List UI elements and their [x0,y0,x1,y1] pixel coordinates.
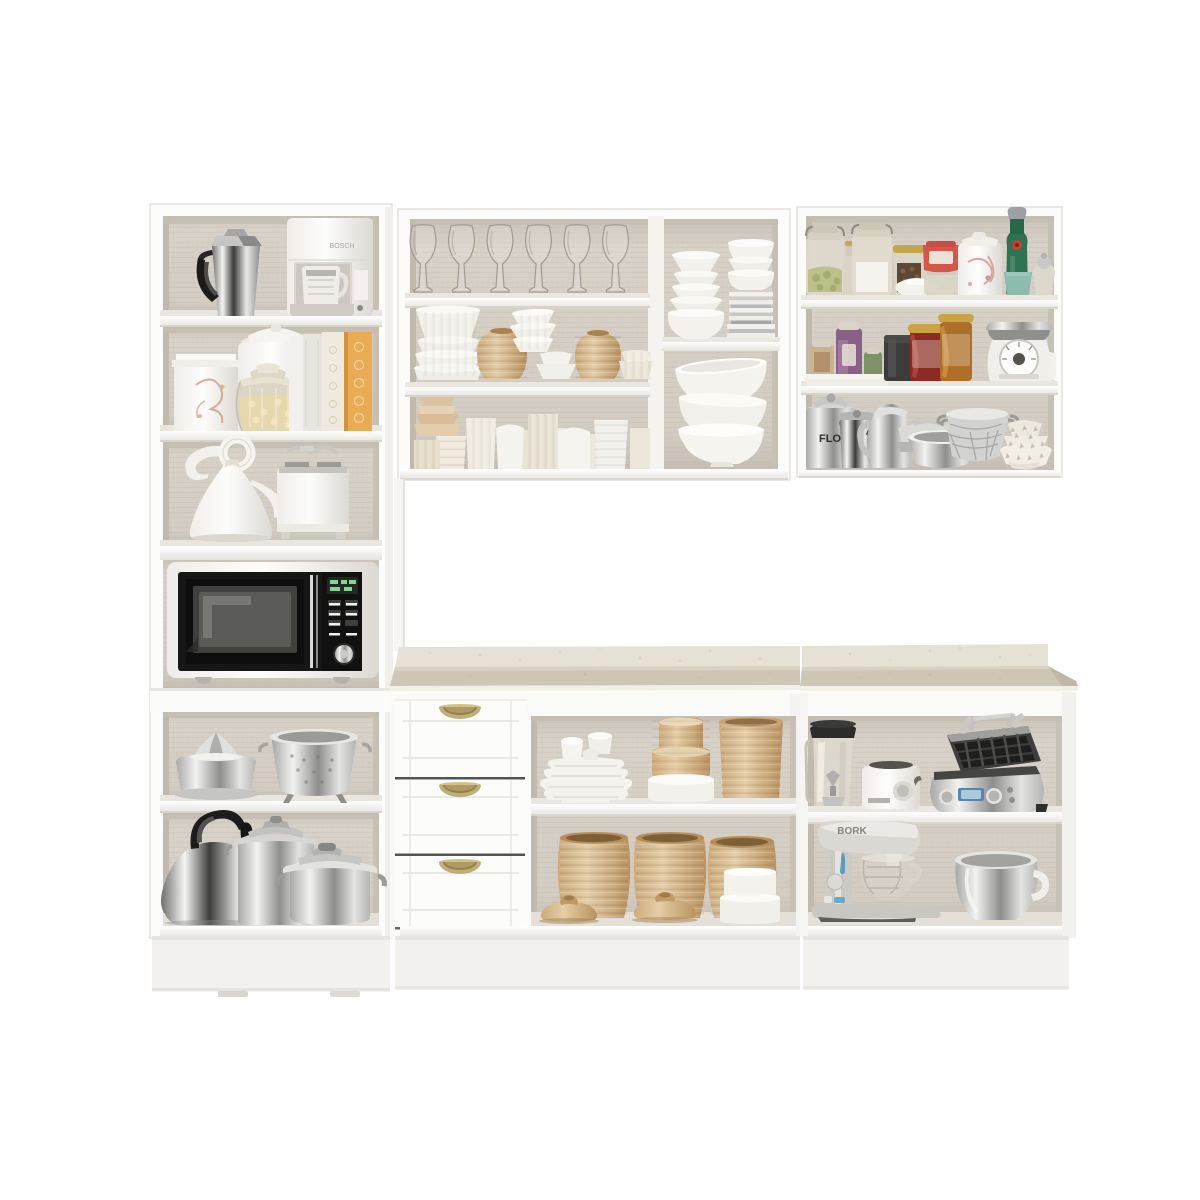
svg-text:FLO: FLO [819,433,841,445]
svg-text:BORK: BORK [837,826,867,837]
svg-text:BOSCH: BOSCH [330,243,355,250]
